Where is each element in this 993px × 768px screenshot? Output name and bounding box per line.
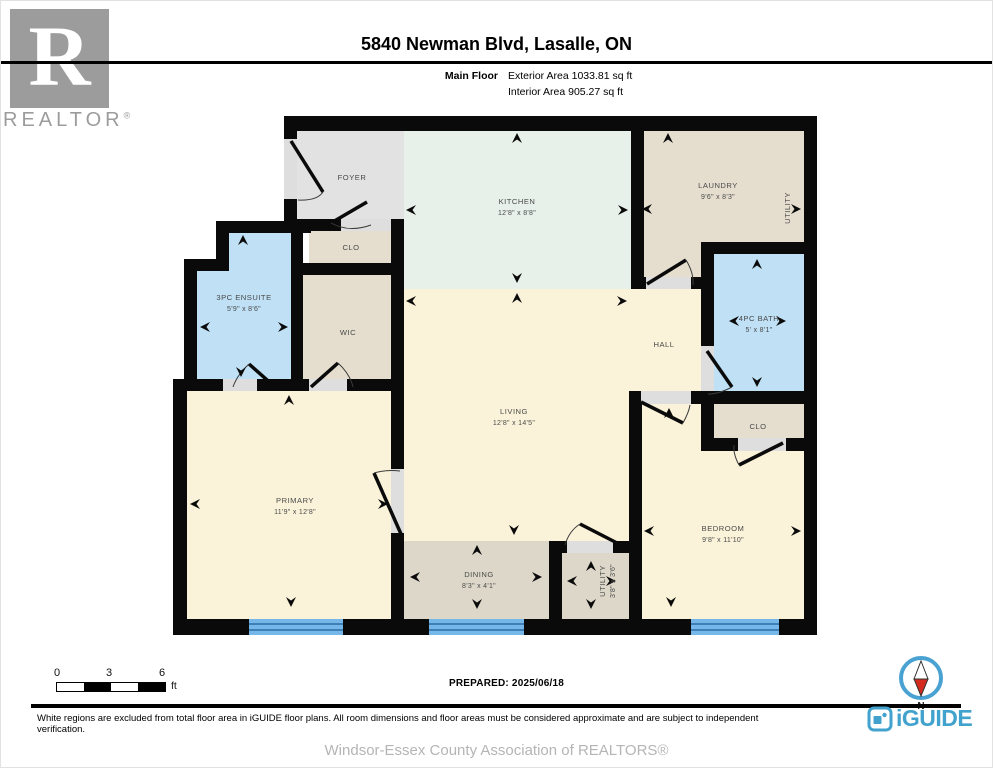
window-bedroom: [691, 619, 779, 635]
label-foyer: FOYER: [338, 173, 367, 182]
label-bedroom: BEDROOM: [702, 524, 745, 533]
dims-bedroom: 9'8" x 11'10": [702, 537, 744, 544]
floor-label: Main Floor: [361, 70, 498, 82]
iguide-logo: iGUIDE: [867, 705, 972, 732]
prepared-date: PREPARED: 2025/06/18: [449, 678, 564, 689]
iguide-wordmark: iGUIDE: [896, 705, 972, 732]
label-kitchen: KITCHEN: [499, 197, 536, 206]
scale-unit: ft: [171, 680, 177, 692]
realtor-wordmark: REALTOR®: [3, 109, 121, 132]
scale-tick-6: 6: [159, 667, 165, 679]
association-text: Windsor-Essex County Association of REAL…: [1, 742, 992, 759]
window-dining: [429, 619, 524, 635]
label-living: LIVING: [500, 407, 528, 416]
iguide-icon: [867, 706, 893, 732]
disclaimer-text: White regions are excluded from total fl…: [37, 713, 797, 735]
realtor-logo-letter: R: [28, 13, 90, 99]
dims-utility-small: 3'8" x 3'6": [610, 564, 617, 598]
dims-living: 12'8" x 14'5": [493, 420, 536, 427]
label-primary: PRIMARY: [276, 496, 314, 505]
realtor-logo: R: [10, 9, 109, 108]
label-utility-small: UTILITY: [598, 565, 607, 597]
room-primary: [187, 391, 391, 619]
window-primary: [249, 619, 343, 635]
footer-rule: [31, 704, 961, 708]
header-rule: [1, 61, 993, 64]
label-bath: 4PC BATH: [739, 314, 780, 323]
label-closet-bedroom: CLO: [749, 422, 766, 431]
room-closet-bedroom: [714, 404, 804, 438]
windows: [249, 619, 779, 635]
room-utility-small: [562, 553, 629, 619]
scale-bar: [56, 682, 166, 692]
page-title: 5840 Newman Blvd, Lasalle, ON: [1, 34, 992, 55]
label-ensuite: 3PC ENSUITE: [216, 293, 271, 302]
room-wic: [303, 275, 391, 379]
dims-ensuite: 5'9" x 8'6": [227, 306, 261, 313]
dims-laundry: 9'6" x 8'3": [701, 194, 735, 201]
room-laundry-lower: [644, 242, 701, 277]
exterior-area: Exterior Area 1033.81 sq ft: [508, 70, 632, 82]
label-hall: HALL: [654, 340, 675, 349]
dims-primary: 11'9" x 12'8": [274, 509, 316, 516]
floor-plan: FOYER KITCHEN 12'8" x 8'8" LAUNDRY 9'6" …: [171, 114, 829, 641]
interior-area: Interior Area 905.27 sq ft: [508, 86, 623, 98]
registered-mark: ®: [124, 110, 131, 120]
label-utility-side: UTILITY: [783, 192, 792, 224]
dims-bath: 5' x 8'1": [746, 327, 773, 334]
dims-kitchen: 12'8" x 8'8": [498, 210, 536, 217]
label-wic: WIC: [340, 328, 356, 337]
label-dining: DINING: [464, 570, 494, 579]
label-laundry: LAUNDRY: [698, 181, 738, 190]
dims-dining: 8'3" x 4'1": [462, 583, 496, 590]
scale-tick-0: 0: [54, 667, 60, 679]
scale-tick-3: 3: [106, 667, 112, 679]
label-closet-foyer: CLO: [342, 243, 359, 252]
floorplan-page: R REALTOR® 5840 Newman Blvd, Lasalle, ON…: [0, 0, 993, 768]
